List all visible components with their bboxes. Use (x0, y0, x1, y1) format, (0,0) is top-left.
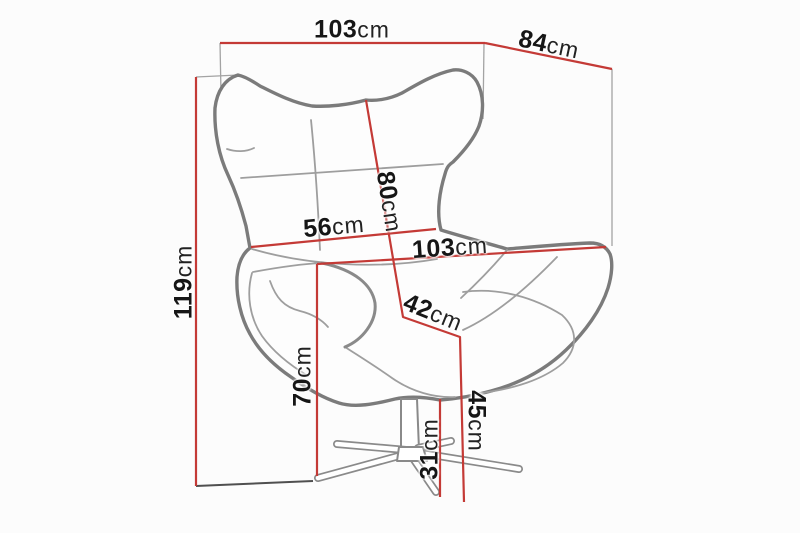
chair-illustration (0, 0, 800, 533)
base-height-unit: cm (417, 418, 443, 451)
overall-height-value: 119 (170, 277, 198, 319)
backrest-width-unit: cm (331, 211, 366, 240)
seat-width-unit: cm (454, 232, 488, 260)
overall-width-value: 103 (314, 16, 357, 44)
dimension-label-base-height: 31cm (418, 418, 443, 479)
floor-line (196, 481, 313, 486)
armrest-height-value: 70 (289, 378, 317, 407)
dimension-diagram: 103cm 84cm 80cm 56cm 103cm 42cm 119cm 70… (0, 0, 800, 533)
backrest-width-value: 56 (302, 213, 333, 243)
dimension-label-overall-width: 103cm (314, 18, 390, 43)
overall-width-unit: cm (357, 17, 390, 43)
base-leg-left-core (318, 454, 406, 478)
base-height-value: 31 (416, 451, 444, 480)
dimension-label-seat-height: 45cm (464, 390, 489, 451)
dimension-label-backrest-width: 56cm (302, 212, 365, 242)
seat-width-value: 103 (411, 233, 456, 264)
armrest-height-unit: cm (290, 345, 316, 378)
dimension-label-armrest-height: 70cm (291, 345, 316, 406)
dimension-label-overall-height: 119cm (172, 245, 197, 320)
dimension-label-seat-width: 103cm (411, 233, 488, 263)
overall-height-unit: cm (171, 245, 197, 278)
backrest-height-unit: cm (376, 198, 407, 234)
seat-height-unit: cm (464, 419, 490, 452)
base-leg-back-left-core (337, 444, 406, 450)
backrest-height-value: 80 (371, 169, 403, 202)
seat-height-value: 45 (463, 390, 491, 419)
